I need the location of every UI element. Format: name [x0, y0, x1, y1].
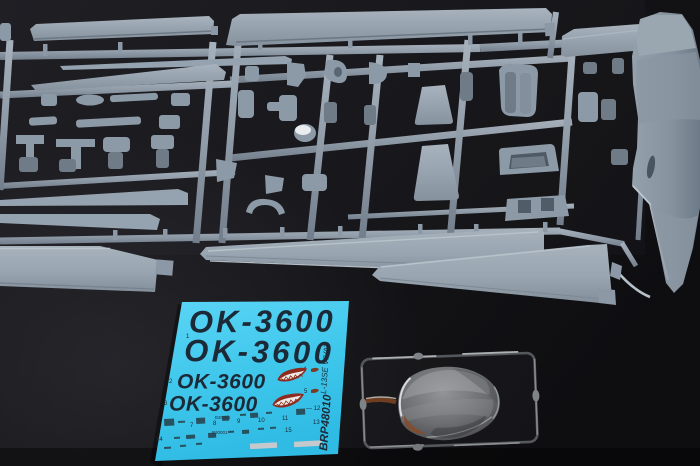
svg-text:OK-3600: OK-3600: [184, 333, 335, 371]
svg-text:OK-3600: OK-3600: [177, 371, 266, 394]
svg-text:10: 10: [258, 418, 265, 424]
svg-text:11: 11: [282, 416, 289, 422]
svg-text:OK-3600: OK-3600: [169, 393, 258, 417]
svg-text:15: 15: [285, 428, 292, 434]
svg-text:— 12: — 12: [306, 406, 321, 412]
svg-text:14: 14: [156, 437, 163, 443]
